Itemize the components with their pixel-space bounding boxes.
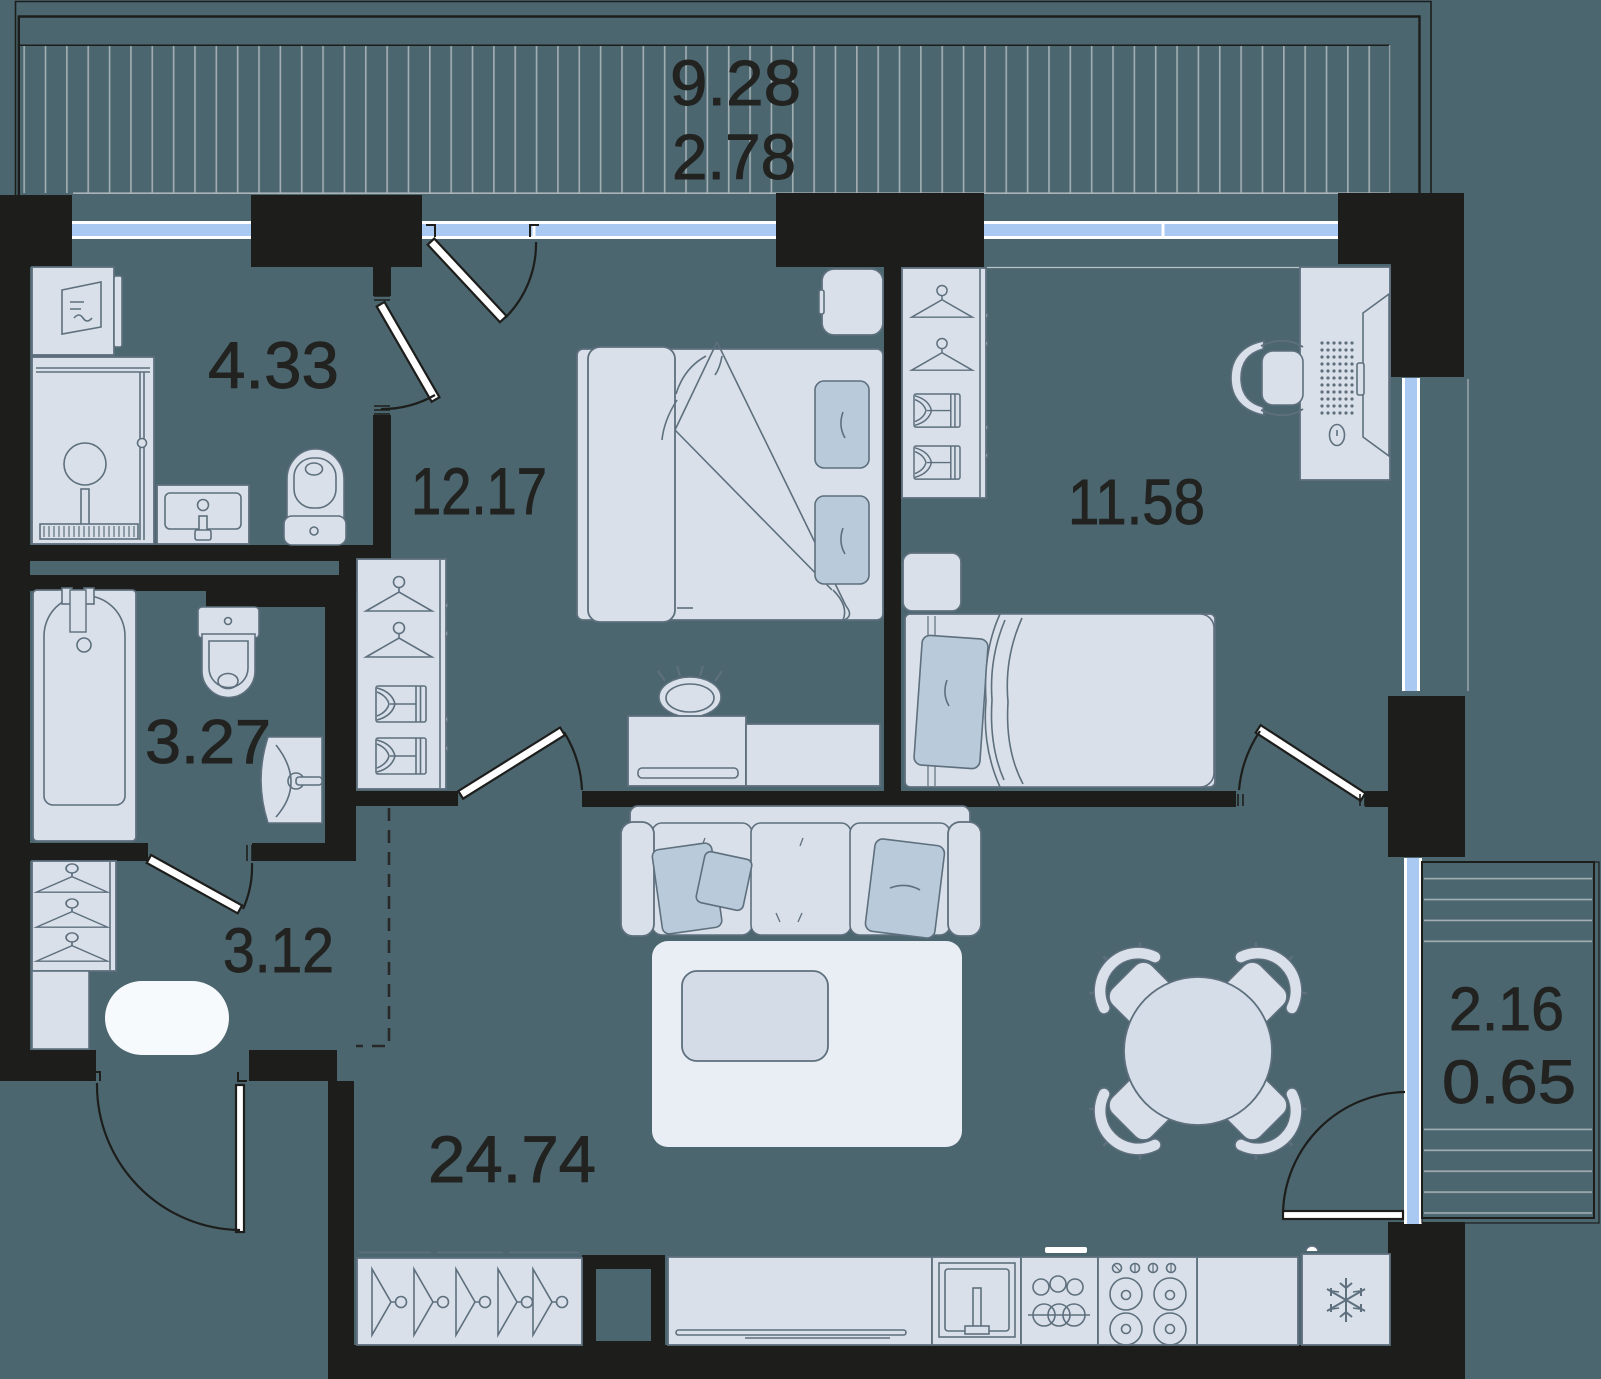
- svg-text:2.78: 2.78: [672, 121, 796, 193]
- svg-text:4.33: 4.33: [208, 328, 339, 402]
- svg-text:3.27: 3.27: [145, 708, 271, 777]
- svg-text:12.17: 12.17: [411, 454, 547, 528]
- svg-text:11.58: 11.58: [1068, 466, 1205, 538]
- svg-text:24.74: 24.74: [428, 1122, 596, 1196]
- svg-text:2.16: 2.16: [1449, 975, 1564, 1043]
- svg-text:3.12: 3.12: [223, 916, 334, 986]
- svg-text:9.28: 9.28: [670, 47, 801, 119]
- svg-text:0.65: 0.65: [1442, 1048, 1576, 1116]
